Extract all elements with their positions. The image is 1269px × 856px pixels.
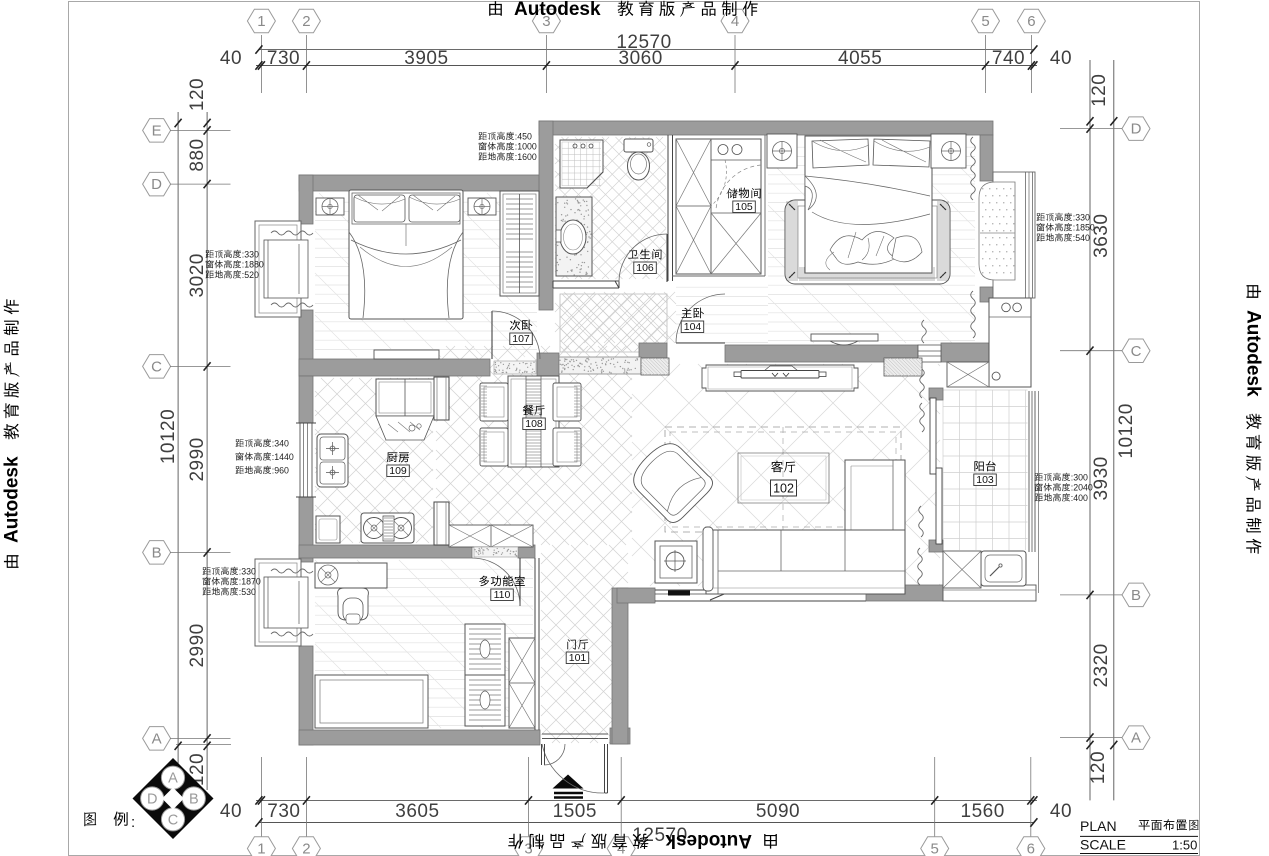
svg-text:120: 120 bbox=[187, 78, 208, 111]
svg-text::: : bbox=[131, 814, 135, 831]
svg-text::340: :340 bbox=[272, 438, 289, 448]
svg-text:B: B bbox=[189, 792, 199, 808]
svg-text::520: :520 bbox=[242, 270, 259, 280]
svg-text:108: 108 bbox=[525, 418, 543, 430]
svg-text:3630: 3630 bbox=[1091, 214, 1112, 258]
svg-text:5090: 5090 bbox=[756, 801, 800, 822]
svg-text:A: A bbox=[152, 731, 162, 748]
svg-text:101: 101 bbox=[569, 652, 587, 664]
svg-text:730: 730 bbox=[267, 48, 300, 69]
svg-text:B: B bbox=[1131, 587, 1141, 604]
svg-text:40: 40 bbox=[1050, 801, 1072, 822]
svg-text:880: 880 bbox=[187, 138, 208, 171]
svg-text:3020: 3020 bbox=[187, 253, 208, 297]
svg-text::330: :330 bbox=[1073, 212, 1090, 222]
svg-text:10120: 10120 bbox=[158, 409, 179, 464]
svg-text::530: :530 bbox=[239, 587, 256, 597]
svg-text::1870: :1870 bbox=[239, 577, 261, 587]
svg-text:2990: 2990 bbox=[187, 437, 208, 481]
svg-text::960: :960 bbox=[272, 465, 289, 475]
svg-text:2990: 2990 bbox=[187, 623, 208, 667]
svg-text:120: 120 bbox=[1089, 74, 1110, 107]
svg-text:1505: 1505 bbox=[553, 801, 597, 822]
svg-text:2: 2 bbox=[302, 841, 310, 856]
svg-text:102: 102 bbox=[773, 482, 794, 496]
svg-text:4055: 4055 bbox=[838, 48, 882, 69]
svg-text:3905: 3905 bbox=[404, 48, 448, 69]
svg-text::1000: :1000 bbox=[515, 142, 537, 152]
svg-text:D: D bbox=[147, 792, 157, 808]
svg-text:740: 740 bbox=[992, 48, 1025, 69]
svg-text:1: 1 bbox=[257, 13, 265, 30]
svg-text:105: 105 bbox=[735, 201, 753, 213]
svg-text:D: D bbox=[1131, 121, 1142, 138]
svg-text:3: 3 bbox=[524, 841, 532, 856]
svg-text:Autodesk: Autodesk bbox=[514, 0, 601, 20]
svg-text::330: :330 bbox=[242, 249, 259, 259]
svg-text::330: :330 bbox=[239, 566, 256, 576]
svg-text:5: 5 bbox=[981, 13, 989, 30]
svg-text:C: C bbox=[168, 812, 178, 828]
svg-text:D: D bbox=[151, 176, 162, 193]
svg-text::2040: :2040 bbox=[1071, 483, 1093, 493]
svg-text::1600: :1600 bbox=[515, 152, 537, 162]
svg-text:120: 120 bbox=[1088, 751, 1109, 784]
svg-text:40: 40 bbox=[220, 801, 242, 822]
svg-text:1560: 1560 bbox=[961, 801, 1005, 822]
svg-text:C: C bbox=[1131, 343, 1142, 360]
svg-text:Autodesk: Autodesk bbox=[665, 830, 752, 851]
svg-text::400: :400 bbox=[1071, 493, 1088, 503]
svg-text::1880: :1880 bbox=[242, 260, 264, 270]
svg-text::300: :300 bbox=[1071, 472, 1088, 482]
svg-text:12570: 12570 bbox=[616, 32, 671, 53]
svg-text:C: C bbox=[151, 359, 162, 376]
svg-text:6: 6 bbox=[1027, 13, 1035, 30]
svg-text:A: A bbox=[1131, 730, 1141, 747]
svg-text:Autodesk: Autodesk bbox=[1242, 310, 1263, 397]
svg-text::540: :540 bbox=[1073, 233, 1090, 243]
svg-text:6: 6 bbox=[1027, 841, 1035, 856]
svg-text:E: E bbox=[152, 123, 162, 140]
svg-text:SCALE: SCALE bbox=[1080, 837, 1126, 853]
svg-text:A: A bbox=[168, 771, 178, 787]
svg-text:3930: 3930 bbox=[1091, 456, 1112, 500]
svg-text::1850: :1850 bbox=[1073, 223, 1095, 233]
svg-text:5: 5 bbox=[931, 841, 939, 856]
svg-text:Autodesk: Autodesk bbox=[2, 456, 23, 543]
svg-text:730: 730 bbox=[267, 801, 300, 822]
svg-text:10120: 10120 bbox=[1116, 403, 1137, 458]
svg-text:103: 103 bbox=[976, 474, 994, 486]
svg-text:104: 104 bbox=[684, 321, 702, 333]
svg-text:109: 109 bbox=[389, 465, 407, 477]
svg-text:B: B bbox=[152, 545, 162, 562]
svg-text:PLAN: PLAN bbox=[1080, 818, 1117, 834]
svg-text:107: 107 bbox=[512, 333, 530, 345]
svg-text:2: 2 bbox=[302, 13, 310, 30]
svg-text:3605: 3605 bbox=[395, 801, 439, 822]
svg-text:1: 1 bbox=[257, 841, 265, 856]
svg-text:40: 40 bbox=[220, 48, 242, 69]
svg-text:110: 110 bbox=[494, 589, 511, 601]
svg-text:106: 106 bbox=[636, 262, 654, 274]
svg-text:2320: 2320 bbox=[1091, 643, 1112, 687]
svg-text::1440: :1440 bbox=[272, 452, 294, 462]
svg-text::450: :450 bbox=[515, 131, 532, 141]
svg-text:1:50: 1:50 bbox=[1172, 838, 1197, 853]
svg-text:40: 40 bbox=[1050, 48, 1072, 69]
